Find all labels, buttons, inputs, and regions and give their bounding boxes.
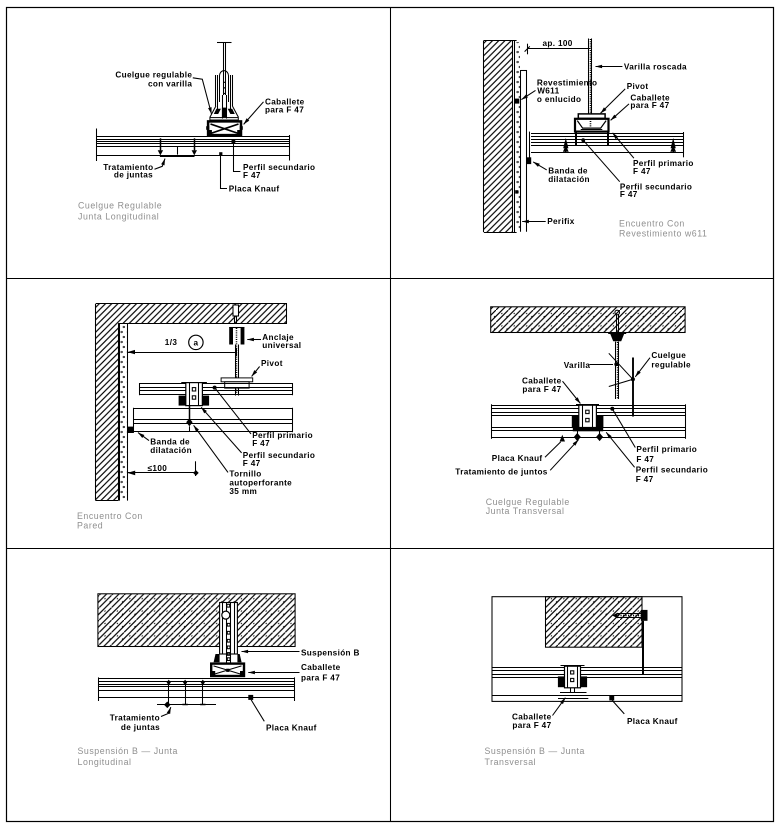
svg-text:Tratamiento de juntos: Tratamiento de juntos bbox=[455, 468, 548, 477]
svg-text:o enlucido: o enlucido bbox=[537, 95, 581, 104]
svg-text:Junta Longitudinal: Junta Longitudinal bbox=[78, 211, 159, 221]
svg-text:Placa Knauf: Placa Knauf bbox=[229, 185, 280, 194]
svg-text:Placa Knauf: Placa Knauf bbox=[266, 723, 317, 732]
svg-text:para F 47: para F 47 bbox=[522, 385, 561, 394]
svg-text:Suspensión B: Suspensión B bbox=[301, 648, 360, 657]
svg-text:F 47: F 47 bbox=[243, 171, 261, 180]
svg-text:Longitudinal: Longitudinal bbox=[78, 757, 132, 767]
svg-text:dilatación: dilatación bbox=[150, 446, 192, 455]
svg-text:para F 47: para F 47 bbox=[630, 101, 669, 110]
svg-text:1/3: 1/3 bbox=[165, 338, 178, 347]
svg-text:Suspensión B — Junta: Suspensión B — Junta bbox=[485, 746, 586, 756]
svg-text:Pivot: Pivot bbox=[627, 82, 649, 91]
svg-text:ap. 100: ap. 100 bbox=[543, 39, 573, 48]
svg-text:Varilla: Varilla bbox=[564, 361, 591, 370]
svg-text:Encuentro Con: Encuentro Con bbox=[619, 219, 685, 229]
svg-text:F 47: F 47 bbox=[636, 475, 654, 484]
svg-text:de juntas: de juntas bbox=[121, 723, 160, 732]
svg-text:Revestimiento w611: Revestimiento w611 bbox=[619, 229, 707, 239]
svg-text:con varilla: con varilla bbox=[148, 80, 192, 89]
svg-text:regulable: regulable bbox=[651, 361, 691, 370]
svg-text:Perifix: Perifix bbox=[547, 217, 575, 226]
svg-text:Suspensión B — Junta: Suspensión B — Junta bbox=[78, 746, 179, 756]
svg-text:Placa Knauf: Placa Knauf bbox=[492, 454, 543, 463]
svg-text:autoperforante: autoperforante bbox=[229, 478, 292, 487]
svg-text:Transversal: Transversal bbox=[485, 757, 537, 767]
svg-text:F 47: F 47 bbox=[633, 167, 651, 176]
svg-text:para F 47: para F 47 bbox=[301, 673, 340, 682]
svg-text:Cuelgue: Cuelgue bbox=[651, 351, 686, 360]
svg-text:dilatación: dilatación bbox=[548, 175, 590, 184]
svg-text:35 mm: 35 mm bbox=[229, 487, 257, 496]
svg-text:de juntas: de juntas bbox=[114, 171, 153, 180]
svg-text:Junta Transversal: Junta Transversal bbox=[486, 506, 565, 516]
svg-text:Tornillo: Tornillo bbox=[229, 470, 261, 479]
svg-text:para F 47: para F 47 bbox=[512, 721, 551, 730]
svg-text:Tratamiento: Tratamiento bbox=[110, 714, 160, 723]
svg-text:F 47: F 47 bbox=[620, 190, 638, 199]
svg-text:universal: universal bbox=[262, 341, 301, 350]
svg-text:F 47: F 47 bbox=[252, 439, 270, 448]
svg-text:Placa Knauf: Placa Knauf bbox=[627, 717, 678, 726]
svg-text:Cuelgue regulable: Cuelgue regulable bbox=[115, 70, 192, 79]
svg-text:Varilla roscada: Varilla roscada bbox=[624, 62, 687, 71]
svg-text:Perfil primario: Perfil primario bbox=[636, 445, 697, 454]
svg-text:F 47: F 47 bbox=[243, 459, 261, 468]
svg-text:Pivot: Pivot bbox=[261, 359, 283, 368]
svg-text:a: a bbox=[193, 339, 198, 348]
svg-text:F 47: F 47 bbox=[636, 455, 654, 464]
svg-text:Pared: Pared bbox=[77, 520, 103, 530]
svg-text:Caballete: Caballete bbox=[301, 663, 341, 672]
svg-text:para F 47: para F 47 bbox=[265, 106, 304, 115]
svg-text:≤100: ≤100 bbox=[148, 464, 168, 473]
svg-text:Perfil secundario: Perfil secundario bbox=[636, 465, 708, 474]
svg-text:Cuelgue Regulable: Cuelgue Regulable bbox=[78, 200, 162, 210]
